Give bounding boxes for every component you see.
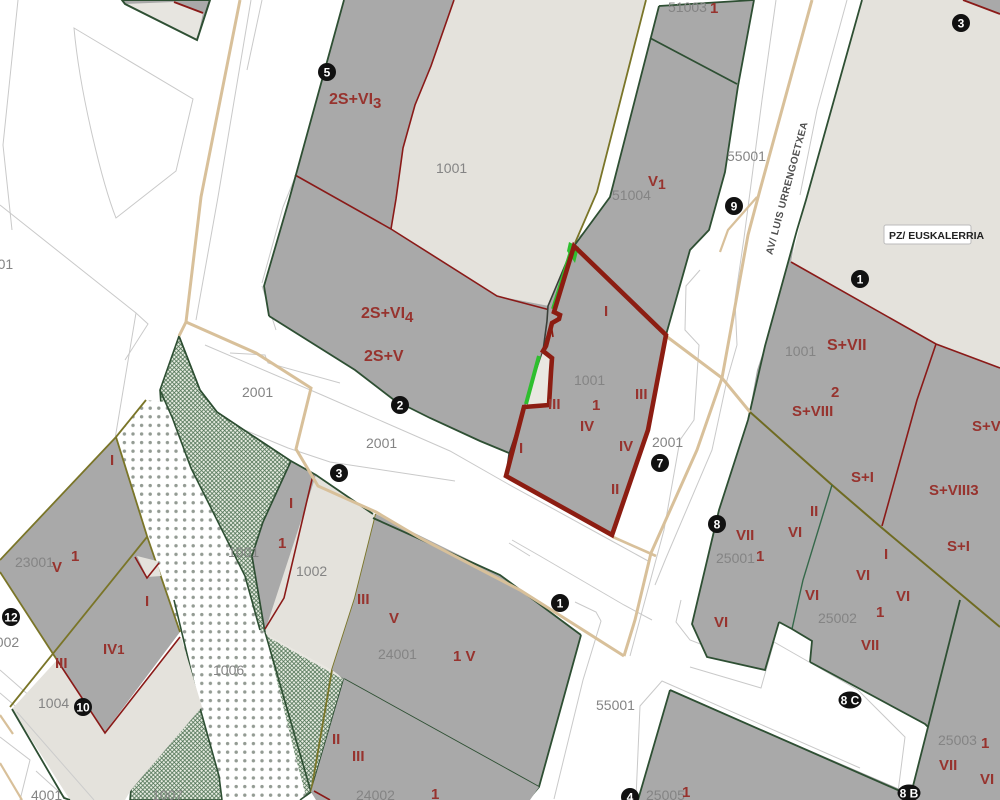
svg-text:4001: 4001	[31, 787, 62, 800]
svg-text:III: III	[357, 591, 370, 608]
svg-text:VI: VI	[805, 587, 819, 604]
svg-text:1001: 1001	[228, 544, 259, 560]
svg-text:VII: VII	[939, 757, 957, 774]
svg-text:VI: VI	[980, 771, 994, 788]
svg-text:VI: VI	[788, 524, 802, 541]
svg-text:1: 1	[857, 273, 864, 287]
svg-text:II: II	[332, 731, 340, 748]
svg-text:1007: 1007	[152, 787, 183, 800]
svg-text:25005: 25005	[646, 787, 685, 800]
svg-text:3: 3	[958, 17, 965, 31]
svg-text:12: 12	[4, 611, 18, 625]
svg-text:55001: 55001	[596, 697, 635, 713]
svg-text:2001: 2001	[366, 435, 397, 451]
svg-text:10: 10	[76, 701, 90, 715]
svg-text:1: 1	[876, 604, 884, 621]
svg-text:1001: 1001	[785, 343, 816, 359]
svg-text:III: III	[352, 748, 365, 765]
svg-text:IV: IV	[580, 418, 594, 435]
svg-text:25002: 25002	[818, 610, 857, 626]
svg-text:9: 9	[731, 200, 738, 214]
svg-text:S+I: S+I	[947, 538, 970, 555]
svg-text:III: III	[55, 655, 68, 672]
svg-text:VI: VI	[856, 567, 870, 584]
svg-text:3002: 3002	[0, 634, 19, 650]
svg-text:II: II	[611, 481, 619, 498]
svg-text:1006: 1006	[213, 662, 244, 678]
svg-text:1001: 1001	[436, 160, 467, 176]
svg-text:VI: VI	[714, 614, 728, 631]
svg-text:IV: IV	[619, 438, 633, 455]
svg-text:1001: 1001	[574, 372, 605, 388]
svg-text:5: 5	[324, 66, 331, 80]
svg-text:PZ/ EUSKALERRIA: PZ/ EUSKALERRIA	[889, 230, 985, 242]
svg-text:7: 7	[657, 457, 664, 471]
svg-text:S+VII: S+VII	[827, 337, 867, 354]
svg-text:2001: 2001	[242, 384, 273, 400]
svg-text:2001: 2001	[0, 256, 13, 272]
svg-text:1004: 1004	[38, 695, 69, 711]
svg-text:III: III	[548, 396, 561, 413]
svg-text:VI: VI	[896, 588, 910, 605]
svg-text:2: 2	[831, 384, 839, 401]
svg-text:I: I	[604, 303, 608, 320]
svg-text:24002: 24002	[356, 787, 395, 800]
svg-text:III: III	[635, 386, 648, 403]
svg-text:8 B: 8 B	[900, 787, 919, 800]
svg-text:1: 1	[592, 397, 600, 414]
svg-text:VII: VII	[736, 527, 754, 544]
svg-text:IV1: IV1	[103, 641, 124, 658]
svg-text:1: 1	[981, 735, 989, 752]
svg-text:1: 1	[557, 597, 564, 611]
svg-text:S+V: S+V	[972, 418, 1000, 435]
svg-text:8: 8	[714, 518, 721, 532]
svg-text:55001: 55001	[727, 148, 766, 164]
svg-text:25003: 25003	[938, 732, 977, 748]
svg-text:2S+V: 2S+V	[364, 348, 404, 365]
svg-text:I: I	[519, 440, 523, 457]
svg-text:24001: 24001	[378, 646, 417, 662]
svg-text:1: 1	[71, 548, 79, 565]
svg-text:1: 1	[710, 0, 718, 17]
svg-text:I: I	[884, 546, 888, 563]
svg-text:1: 1	[431, 786, 439, 800]
svg-text:3: 3	[336, 467, 343, 481]
svg-text:1002: 1002	[296, 563, 327, 579]
svg-text:S+I: S+I	[851, 469, 874, 486]
svg-text:II: II	[810, 503, 818, 520]
svg-text:51003: 51003	[668, 0, 707, 15]
svg-text:V: V	[389, 610, 399, 627]
svg-text:2: 2	[397, 399, 404, 413]
svg-text:2001: 2001	[652, 434, 683, 450]
svg-text:V: V	[52, 559, 62, 576]
svg-text:1: 1	[682, 784, 690, 800]
svg-text:23001: 23001	[15, 554, 54, 570]
svg-text:I: I	[145, 593, 149, 610]
svg-text:I: I	[289, 495, 293, 512]
svg-text:8 C: 8 C	[841, 694, 860, 708]
svg-text:VII: VII	[861, 637, 879, 654]
svg-text:1 V: 1 V	[453, 648, 476, 665]
svg-text:51004: 51004	[612, 187, 651, 203]
svg-text:1: 1	[756, 548, 764, 565]
svg-text:25001: 25001	[716, 550, 755, 566]
svg-text:S+VIII: S+VIII	[792, 403, 833, 420]
svg-text:4: 4	[627, 791, 634, 800]
svg-text:1: 1	[278, 535, 286, 552]
svg-text:S+VIII3: S+VIII3	[929, 482, 979, 499]
svg-text:I: I	[110, 452, 114, 469]
